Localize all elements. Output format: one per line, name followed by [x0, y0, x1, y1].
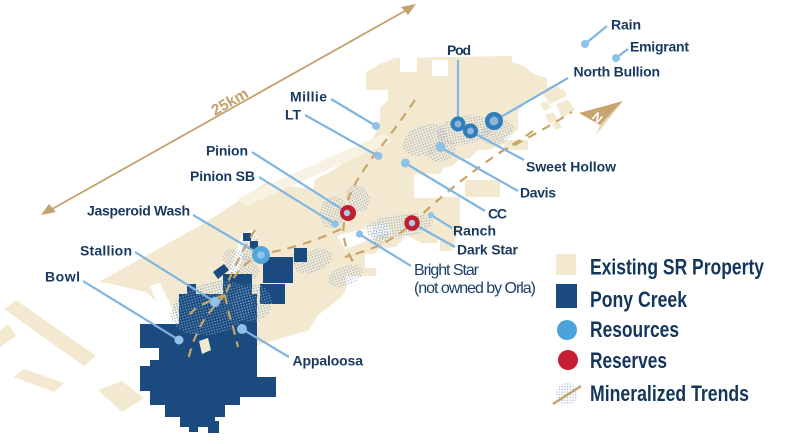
svg-text:Reserves: Reserves	[590, 348, 667, 373]
svg-text:Emigrant: Emigrant	[630, 39, 689, 55]
svg-text:Pony Creek: Pony Creek	[590, 287, 687, 312]
svg-text:Davis: Davis	[520, 185, 556, 201]
svg-text:Ranch: Ranch	[453, 223, 496, 239]
svg-text:CC: CC	[488, 206, 507, 222]
svg-text:Millie: Millie	[290, 89, 327, 105]
svg-text:Bright Star: Bright Star	[414, 262, 480, 279]
svg-text:(not owned by Orla): (not owned by Orla)	[414, 280, 536, 297]
svg-text:Bowl: Bowl	[45, 269, 80, 285]
svg-text:Mineralized Trends: Mineralized Trends	[590, 381, 749, 406]
svg-text:North Bullion: North Bullion	[574, 64, 661, 80]
svg-text:Rain: Rain	[611, 17, 641, 33]
svg-text:Pinion SB: Pinion SB	[190, 168, 255, 184]
svg-text:25km: 25km	[209, 85, 252, 119]
svg-text:Appaloosa: Appaloosa	[293, 353, 364, 369]
svg-text:Pod: Pod	[447, 42, 471, 58]
svg-text:Pinion: Pinion	[206, 143, 248, 159]
svg-text:Dark Star: Dark Star	[457, 242, 519, 258]
svg-text:Stallion: Stallion	[80, 243, 132, 259]
svg-text:Jasperoid Wash: Jasperoid Wash	[87, 202, 190, 218]
svg-text:Existing SR Property: Existing SR Property	[590, 255, 764, 280]
svg-text:LT: LT	[285, 107, 301, 123]
svg-text:Resources: Resources	[590, 317, 679, 342]
svg-text:Sweet Hollow: Sweet Hollow	[526, 159, 616, 175]
